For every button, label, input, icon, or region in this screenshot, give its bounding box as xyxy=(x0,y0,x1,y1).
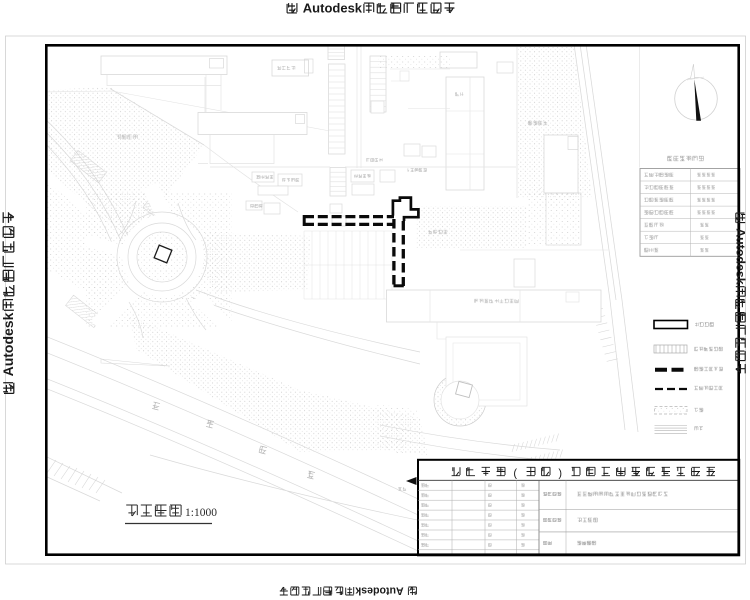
svg-text:Autodesk: Autodesk xyxy=(733,228,747,285)
svg-text:Autodesk: Autodesk xyxy=(355,585,403,597)
svg-text:Autodesk: Autodesk xyxy=(0,312,16,376)
svg-text:Autodesk: Autodesk xyxy=(303,0,363,15)
svg-text:): ) xyxy=(558,468,562,480)
svg-text:1:1000: 1:1000 xyxy=(185,507,217,519)
svg-text:(: ( xyxy=(513,468,517,480)
